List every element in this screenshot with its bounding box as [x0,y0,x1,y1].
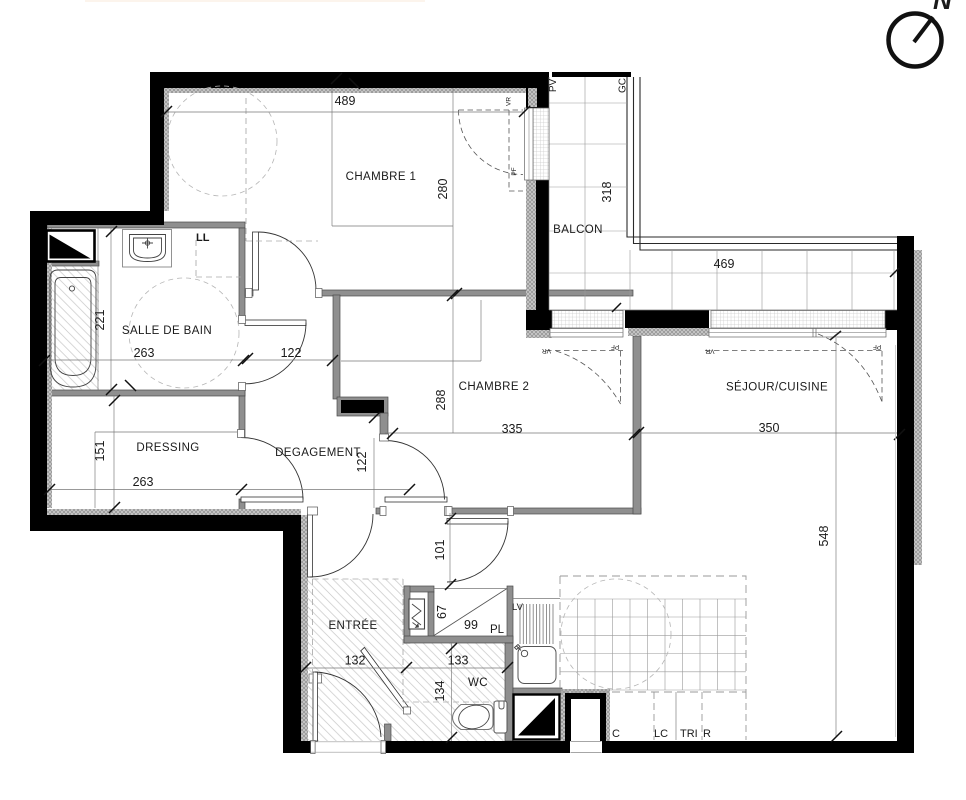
svg-text:CHAMBRE 1: CHAMBRE 1 [346,171,417,183]
svg-text:263: 263 [134,346,155,360]
svg-text:288: 288 [434,390,448,411]
svg-text:TRI: TRI [680,728,698,740]
svg-text:VR: VR [705,348,714,355]
svg-text:BALCON: BALCON [553,224,603,236]
svg-text:263: 263 [133,475,154,489]
svg-text:318: 318 [600,182,614,203]
svg-text:DRESSING: DRESSING [136,442,199,454]
svg-text:548: 548 [817,526,831,547]
svg-text:SALLE DE BAIN: SALLE DE BAIN [122,325,212,337]
svg-text:101: 101 [433,540,447,561]
svg-text:WC: WC [468,677,488,689]
svg-text:PF: PF [873,343,881,350]
svg-text:PV: PV [548,79,559,93]
svg-text:PF: PF [511,167,518,175]
svg-text:LL: LL [196,232,210,244]
svg-text:469: 469 [714,257,735,271]
svg-text:VR: VR [542,347,551,354]
svg-text:PF: PF [611,343,619,350]
svg-text:99: 99 [464,618,478,632]
svg-text:CHAMBRE 2: CHAMBRE 2 [459,381,530,393]
svg-text:67: 67 [435,605,449,619]
svg-text:ENTRÉE: ENTRÉE [328,619,377,632]
svg-text:N: N [933,0,953,15]
svg-text:489: 489 [335,94,356,108]
svg-text:GC: GC [618,78,629,93]
svg-text:122: 122 [355,452,369,473]
svg-text:350: 350 [759,421,780,435]
svg-text:133: 133 [448,654,469,668]
svg-text:335: 335 [502,422,523,436]
svg-text:132: 132 [345,654,366,668]
svg-text:PL: PL [490,624,505,636]
svg-text:C: C [612,728,620,740]
svg-text:R: R [703,728,711,740]
svg-text:151: 151 [93,441,107,462]
svg-text:LV: LV [512,602,524,613]
svg-text:221: 221 [93,310,107,331]
svg-text:122: 122 [281,346,302,360]
svg-text:SÉJOUR/CUISINE: SÉJOUR/CUISINE [726,381,828,394]
svg-text:280: 280 [436,179,450,200]
svg-text:LC: LC [654,728,668,740]
svg-text:DEGAGEMENT: DEGAGEMENT [275,447,361,459]
svg-text:134: 134 [433,681,447,702]
svg-text:VR: VR [506,97,513,106]
